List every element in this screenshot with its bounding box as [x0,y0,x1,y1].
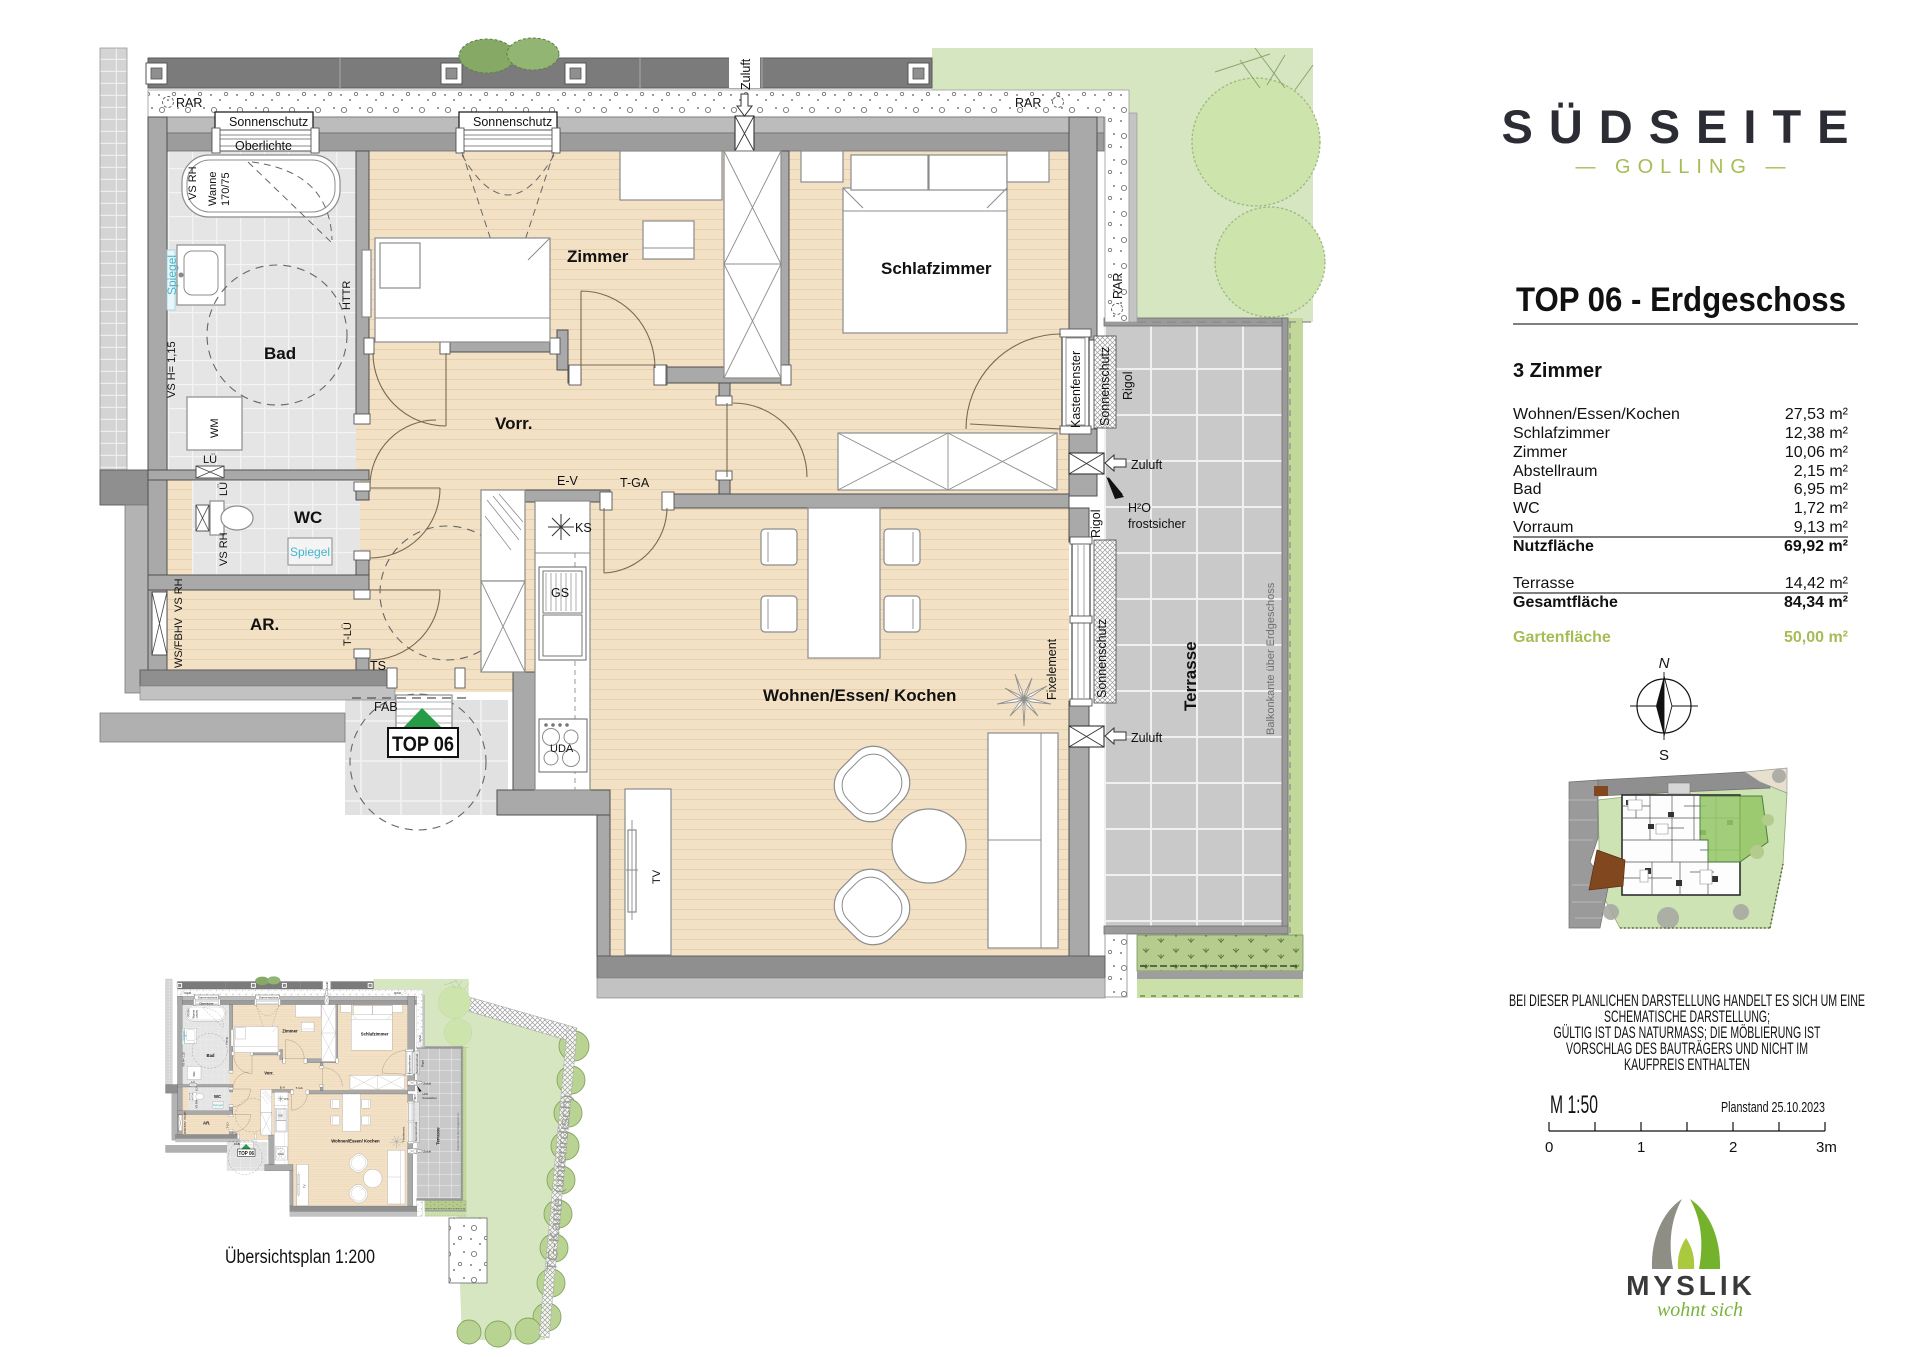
svg-text:Schlafzimmer: Schlafzimmer [1513,425,1611,442]
svg-text:2,15 m²: 2,15 m² [1794,463,1849,480]
svg-text:Planstand 25.10.2023: Planstand 25.10.2023 [1721,1099,1825,1116]
svg-text:M 1:50: M 1:50 [1550,1091,1598,1119]
svg-text:Zuluft: Zuluft [1131,458,1163,472]
svg-text:VS RH: VS RH [173,578,185,612]
svg-text:50,00 m²: 50,00 m² [1784,629,1848,646]
svg-text:Sonnenschutz: Sonnenschutz [229,115,308,129]
svg-text:Bad: Bad [264,344,296,363]
svg-text:MYSLIK: MYSLIK [1626,1270,1756,1301]
svg-text:KAUFPREIS ENTHALTEN: KAUFPREIS ENTHALTEN [1624,1056,1750,1074]
svg-text:10,06 m²: 10,06 m² [1785,444,1849,461]
svg-text:Gesamtfläche: Gesamtfläche [1513,594,1618,611]
svg-text:Bad: Bad [1513,481,1541,498]
svg-text:Spiegel: Spiegel [290,545,330,559]
svg-text:Terrasse: Terrasse [1181,641,1200,711]
svg-text:Schlafzimmer: Schlafzimmer [881,259,992,278]
svg-text:WC: WC [1513,500,1540,517]
svg-text:Abstellraum: Abstellraum [1513,463,1597,480]
svg-text:RAR: RAR [176,96,202,110]
svg-text:Wanne: Wanne [207,172,219,206]
svg-text:Wohnen/Essen/ Kochen: Wohnen/Essen/ Kochen [763,686,956,705]
svg-text:H²O: H²O [1128,501,1151,515]
svg-text:WC: WC [294,508,322,527]
svg-text:Oberlichte: Oberlichte [235,139,292,153]
svg-text:27,53 m²: 27,53 m² [1785,406,1849,423]
svg-text:12,38 m²: 12,38 m² [1785,425,1849,442]
svg-text:Sonnenschutz: Sonnenschutz [1098,347,1112,426]
svg-text:Sonnenschutz: Sonnenschutz [1095,619,1109,698]
svg-text:3m: 3m [1816,1139,1837,1156]
svg-text:GS: GS [551,586,569,600]
svg-text:0: 0 [1545,1139,1553,1156]
svg-text:TOP 06 - Erdgeschoss: TOP 06 - Erdgeschoss [1516,281,1846,319]
svg-text:Zuluft: Zuluft [1131,731,1163,745]
svg-text:Rigol: Rigol [1089,510,1103,539]
svg-text:T-GA: T-GA [620,476,650,490]
svg-text:S: S [1659,747,1669,764]
svg-text:TS: TS [370,659,386,673]
svg-text:Fixelement: Fixelement [1045,638,1059,700]
svg-text:wohnt sich: wohnt sich [1657,1299,1743,1321]
svg-text:RAR: RAR [1015,96,1041,110]
svg-text:1: 1 [1637,1139,1645,1156]
svg-text:Vorr.: Vorr. [495,414,532,433]
svg-text:frostsicher: frostsicher [1128,517,1186,531]
svg-text:9,13 m²: 9,13 m² [1794,519,1849,536]
svg-text:Balkonkante über Erdgeschoss: Balkonkante über Erdgeschoss [1265,582,1277,735]
svg-text:TOP 06: TOP 06 [392,733,454,756]
svg-text:FAB: FAB [374,700,398,714]
svg-text:Wohnen/Essen/Kochen: Wohnen/Essen/Kochen [1513,406,1680,423]
svg-text:HTTR: HTTR [341,281,353,310]
svg-text:LÜ: LÜ [218,482,230,496]
svg-text:AR.: AR. [250,615,279,634]
svg-text:Übersichtsplan 1:200: Übersichtsplan 1:200 [225,1247,375,1268]
svg-text:E-V: E-V [557,474,579,488]
svg-text:SÜDSEITE: SÜDSEITE [1501,100,1864,153]
svg-text:Gartenfläche: Gartenfläche [1513,629,1611,646]
svg-text:Terrasse: Terrasse [1513,575,1574,592]
svg-text:Kastenfenster: Kastenfenster [1069,351,1083,428]
svg-text:Vorraum: Vorraum [1513,519,1573,536]
svg-text:170/75: 170/75 [220,172,232,206]
svg-text:Zimmer: Zimmer [1513,444,1568,461]
svg-text:RAR: RAR [1111,273,1125,299]
svg-text:1,72 m²: 1,72 m² [1794,500,1849,517]
svg-text:VS RH: VS RH [187,166,199,200]
svg-text:Rigol: Rigol [1121,372,1135,401]
svg-text:6,95 m²: 6,95 m² [1794,481,1849,498]
svg-text:69,92 m²: 69,92 m² [1784,538,1848,555]
svg-text:Zuluft: Zuluft [739,58,753,90]
svg-text:WS/FBHV: WS/FBHV [173,617,185,668]
svg-text:N: N [1659,655,1670,672]
svg-text:Nutzfläche: Nutzfläche [1513,538,1594,555]
svg-text:Spiegel: Spiegel [165,255,179,295]
svg-text:TV: TV [651,869,663,884]
svg-text:Sonnenschutz: Sonnenschutz [473,115,552,129]
svg-text:3 Zimmer: 3 Zimmer [1513,360,1602,382]
svg-text:VS RH: VS RH [218,532,230,566]
svg-text:14,42 m²: 14,42 m² [1785,575,1849,592]
svg-text:T-LÜ: T-LÜ [342,622,354,646]
svg-text:2: 2 [1729,1139,1737,1156]
svg-text:Zimmer: Zimmer [567,247,629,266]
svg-text:LÜ: LÜ [203,454,217,466]
svg-text:WM: WM [209,418,221,438]
svg-text:VS H= 1,15: VS H= 1,15 [166,341,178,398]
svg-text:KS: KS [575,521,592,535]
svg-text:84,34 m²: 84,34 m² [1784,594,1848,611]
svg-text:— GOLLING —: — GOLLING — [1575,156,1792,178]
svg-text:UDA: UDA [550,743,574,755]
